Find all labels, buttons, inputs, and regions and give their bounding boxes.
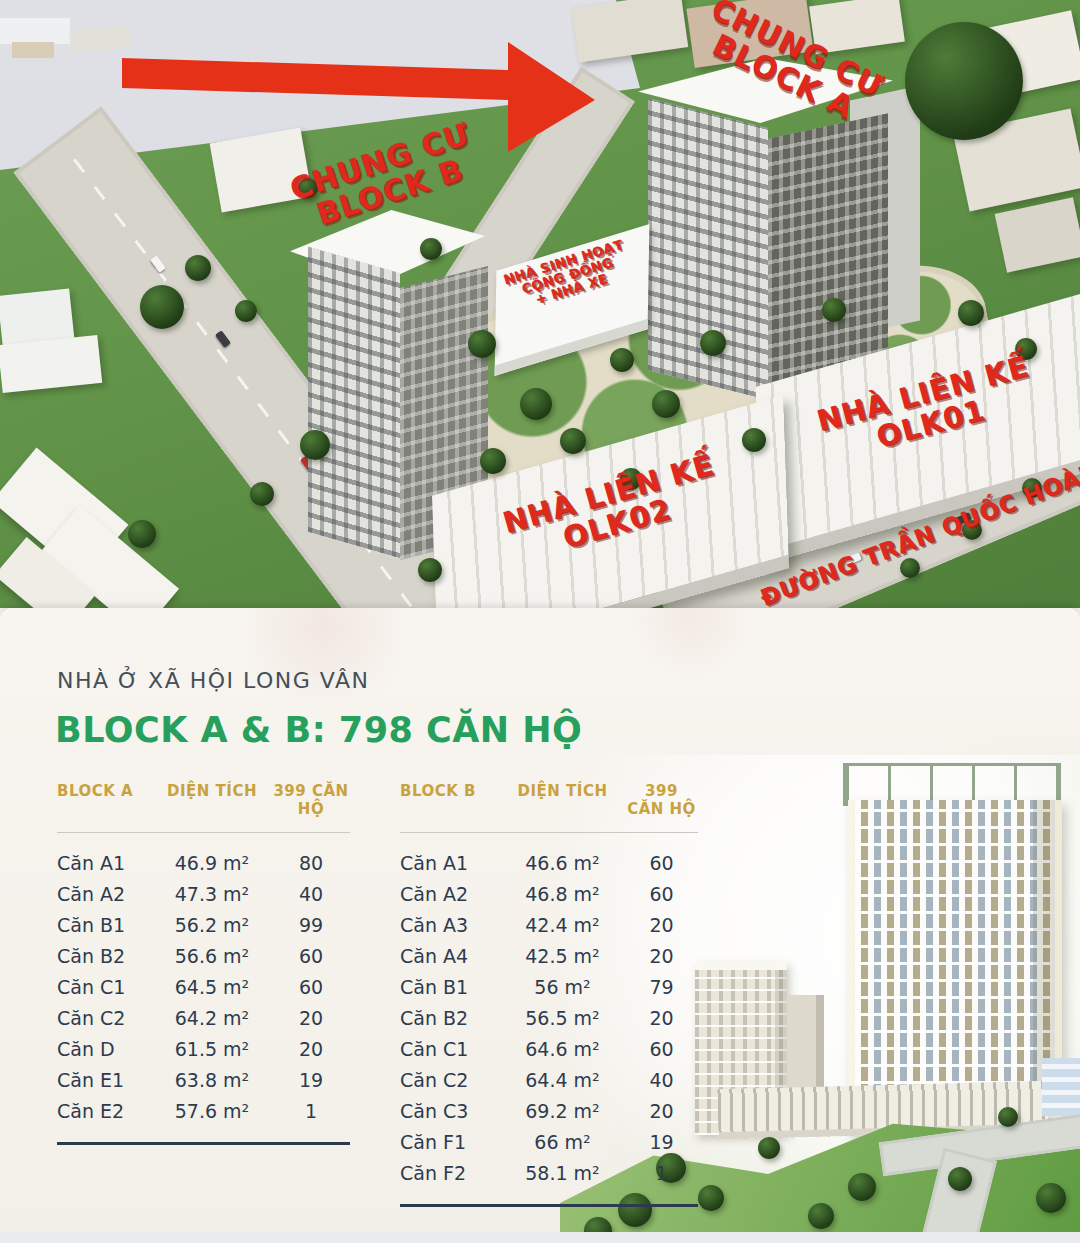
- arrow-shape: [122, 42, 595, 152]
- page-bottom-strip: [0, 1232, 1080, 1243]
- table-cell: 20: [625, 1002, 698, 1033]
- table-cell: 19: [625, 1126, 698, 1157]
- table-row: Căn C164.6 m²60: [400, 1033, 698, 1064]
- table-row: Căn A146.9 m²80: [57, 833, 350, 879]
- table-cell: Căn B1: [400, 971, 500, 1002]
- table-cell: 1: [272, 1095, 350, 1126]
- table-row: Căn E257.6 m²1: [57, 1095, 350, 1126]
- table-row: Căn A246.8 m²60: [400, 878, 698, 909]
- table-cell: 56 m²: [500, 971, 625, 1002]
- table-cell: Căn E1: [57, 1064, 152, 1095]
- table-cell: Căn A2: [57, 878, 152, 909]
- table-cell: 56.6 m²: [152, 940, 272, 971]
- site-plan-render: CHUNG CƯ BLOCK A CHUNG CƯ BLOCK B NHÀ SI…: [0, 0, 1080, 608]
- table-row: Căn B256.6 m²60: [57, 940, 350, 971]
- table-cell: 47.3 m²: [152, 878, 272, 909]
- column-header: 399 CĂN HỘ: [625, 782, 698, 833]
- table-cell: 56.5 m²: [500, 1002, 625, 1033]
- table-row: Căn A442.5 m²20: [400, 940, 698, 971]
- table-row: Căn B156.2 m²99: [57, 909, 350, 940]
- table-cell: 66 m²: [500, 1126, 625, 1157]
- table-cell: Căn B2: [57, 940, 152, 971]
- tree: [998, 1107, 1018, 1127]
- arrow-icon: [0, 0, 1080, 608]
- table-cell: 1: [625, 1157, 698, 1188]
- tree: [848, 1173, 876, 1201]
- table-cell: Căn E2: [57, 1095, 152, 1126]
- column-header: DIỆN TÍCH: [152, 782, 272, 833]
- column-header: BLOCK A: [57, 782, 152, 833]
- table-cell: 60: [272, 940, 350, 971]
- table-cell: 64.4 m²: [500, 1064, 625, 1095]
- table-cell: 80: [272, 833, 350, 879]
- table-cell: 79: [625, 971, 698, 1002]
- table-cell: Căn C2: [57, 1002, 152, 1033]
- table-cell: 64.2 m²: [152, 1002, 272, 1033]
- table-row: Căn C164.5 m²60: [57, 971, 350, 1002]
- table-cell: Căn C1: [57, 971, 152, 1002]
- column-header: DIỆN TÍCH: [500, 782, 625, 833]
- table-cell: 69.2 m²: [500, 1095, 625, 1126]
- column-header: 399 CĂN HỘ: [272, 782, 350, 833]
- tree: [758, 1137, 780, 1159]
- table-row: Căn C369.2 m²20: [400, 1095, 698, 1126]
- table-row: Căn E163.8 m²19: [57, 1064, 350, 1095]
- table-row: Căn A342.4 m²20: [400, 909, 698, 940]
- table-cell: Căn B1: [57, 909, 152, 940]
- table-row: Căn D61.5 m²20: [57, 1033, 350, 1064]
- block-a-table: BLOCK A DIỆN TÍCH 399 CĂN HỘ Căn A146.9 …: [57, 782, 350, 1145]
- table-row: Căn C264.4 m²40: [400, 1064, 698, 1095]
- table-row: Căn A146.6 m²60: [400, 833, 698, 879]
- table-row: Căn F258.1 m²1: [400, 1157, 698, 1188]
- tree: [1036, 1183, 1066, 1213]
- tree: [698, 1185, 724, 1211]
- table-cell: 61.5 m²: [152, 1033, 272, 1064]
- table-cell: 58.1 m²: [500, 1157, 625, 1188]
- table-cell: Căn A1: [57, 833, 152, 879]
- table-cell: 20: [625, 909, 698, 940]
- table-cell: Căn C3: [400, 1095, 500, 1126]
- render-blue-building: [1042, 1058, 1080, 1116]
- table-cell: 20: [625, 1095, 698, 1126]
- table-cell: 40: [272, 878, 350, 909]
- table-cell: 57.6 m²: [152, 1095, 272, 1126]
- table-cell: 46.6 m²: [500, 833, 625, 879]
- tree: [808, 1203, 834, 1229]
- table-cell: 46.8 m²: [500, 878, 625, 909]
- table-cell: Căn F2: [400, 1157, 500, 1188]
- table-cell: 19: [272, 1064, 350, 1095]
- table-cell: 64.6 m²: [500, 1033, 625, 1064]
- table-cell: Căn A2: [400, 878, 500, 909]
- table-cell: 99: [272, 909, 350, 940]
- table-header-row: BLOCK A DIỆN TÍCH 399 CĂN HỘ: [57, 782, 350, 833]
- table-cell: Căn B2: [400, 1002, 500, 1033]
- table-cell: 63.8 m²: [152, 1064, 272, 1095]
- table-cell: 56.2 m²: [152, 909, 272, 940]
- table-cell: 42.4 m²: [500, 909, 625, 940]
- table-row: Căn C264.2 m²20: [57, 1002, 350, 1033]
- table-cell: Căn C1: [400, 1033, 500, 1064]
- table-row: Căn B256.5 m²20: [400, 1002, 698, 1033]
- page-title: BLOCK A & B: 798 CĂN HỘ: [55, 710, 582, 750]
- table-cell: Căn A1: [400, 833, 500, 879]
- table-cell: 40: [625, 1064, 698, 1095]
- table-cell: 20: [625, 940, 698, 971]
- table-cell: 60: [625, 878, 698, 909]
- table-cell: Căn C2: [400, 1064, 500, 1095]
- table-cell: 60: [272, 971, 350, 1002]
- table-cell: 46.9 m²: [152, 833, 272, 879]
- table-row: Căn F166 m²19: [400, 1126, 698, 1157]
- table-cell: 20: [272, 1002, 350, 1033]
- table-cell: 42.5 m²: [500, 940, 625, 971]
- column-header: BLOCK B: [400, 782, 500, 833]
- table-cell: 60: [625, 833, 698, 879]
- page-subtitle: NHÀ Ở XÃ HỘI LONG VÂN: [57, 668, 370, 693]
- table-cell: 60: [625, 1033, 698, 1064]
- block-b-table: BLOCK B DIỆN TÍCH 399 CĂN HỘ Căn A146.6 …: [400, 782, 698, 1207]
- table-cell: 20: [272, 1033, 350, 1064]
- table-cell: Căn A4: [400, 940, 500, 971]
- table-row: Căn A247.3 m²40: [57, 878, 350, 909]
- brochure-page: CHUNG CƯ BLOCK A CHUNG CƯ BLOCK B NHÀ SI…: [0, 0, 1080, 1243]
- table-header-row: BLOCK B DIỆN TÍCH 399 CĂN HỘ: [400, 782, 698, 833]
- tree: [948, 1167, 972, 1191]
- table-cell: Căn A3: [400, 909, 500, 940]
- table-cell: Căn F1: [400, 1126, 500, 1157]
- table-row: Căn B156 m²79: [400, 971, 698, 1002]
- table-cell: Căn D: [57, 1033, 152, 1064]
- table-cell: 64.5 m²: [152, 971, 272, 1002]
